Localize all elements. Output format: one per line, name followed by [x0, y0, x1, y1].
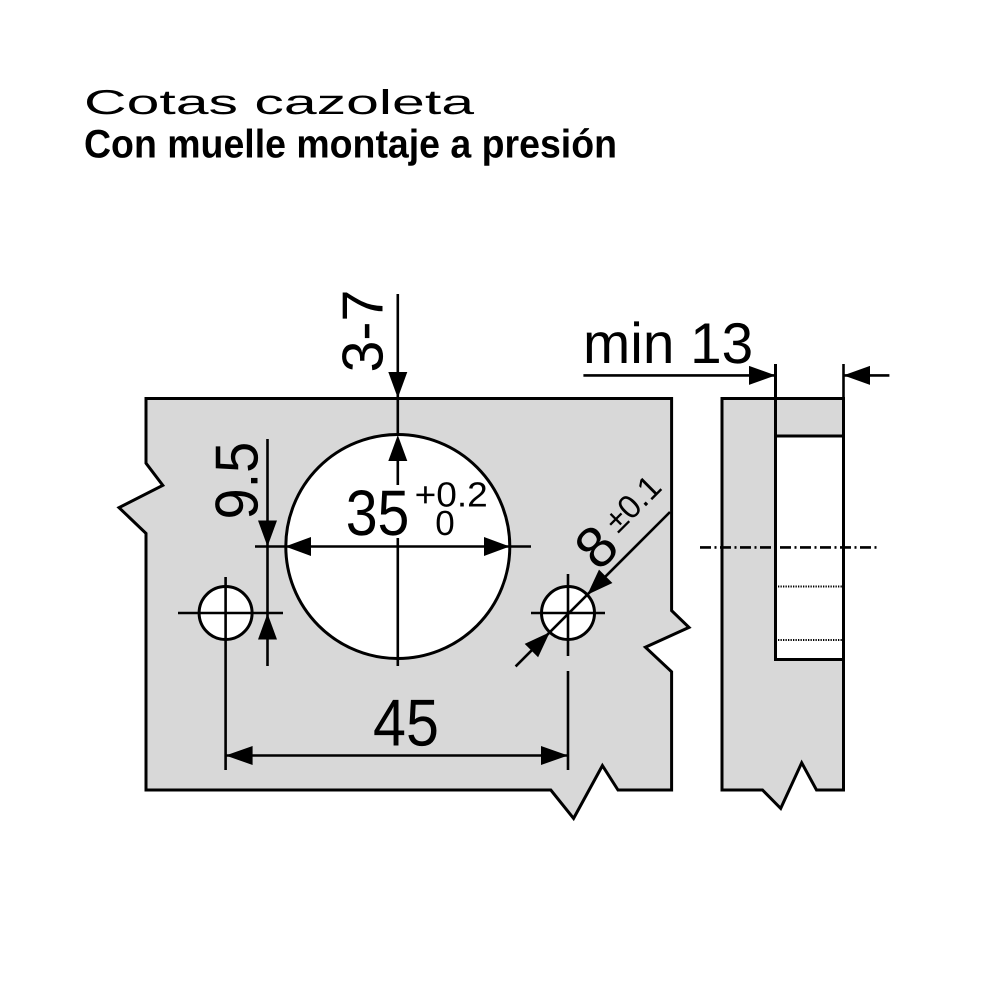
svg-text:0: 0	[435, 504, 454, 543]
svg-text:min 13: min 13	[583, 312, 753, 376]
svg-text:Con muelle montaje a presión: Con muelle montaje a presión	[84, 123, 617, 167]
svg-text:45: 45	[373, 687, 439, 761]
svg-text:Cotas cazoleta: Cotas cazoleta	[84, 84, 475, 122]
svg-text:9.5: 9.5	[203, 442, 271, 520]
svg-text:35: 35	[346, 477, 410, 549]
svg-text:3-7: 3-7	[331, 290, 395, 373]
